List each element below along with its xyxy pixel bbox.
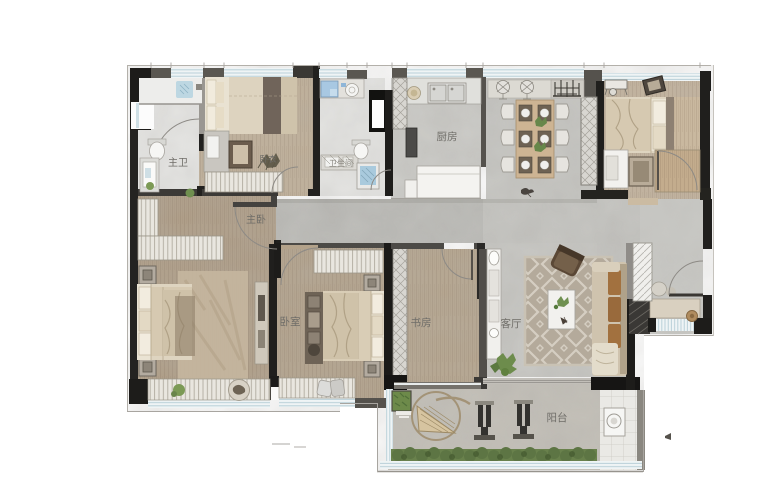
svg-text:主卫: 主卫 [168,157,188,169]
svg-text:卧衣: 卧衣 [259,154,277,164]
svg-text:主卧: 主卧 [246,213,266,226]
svg-text:阳台: 阳台 [547,411,568,424]
svg-text:厨房: 厨房 [437,130,458,143]
svg-text:客厅: 客厅 [501,317,522,330]
svg-text:卫生间: 卫生间 [329,158,353,168]
svg-text:书房: 书房 [411,316,432,329]
svg-text:卧室: 卧室 [280,315,301,328]
